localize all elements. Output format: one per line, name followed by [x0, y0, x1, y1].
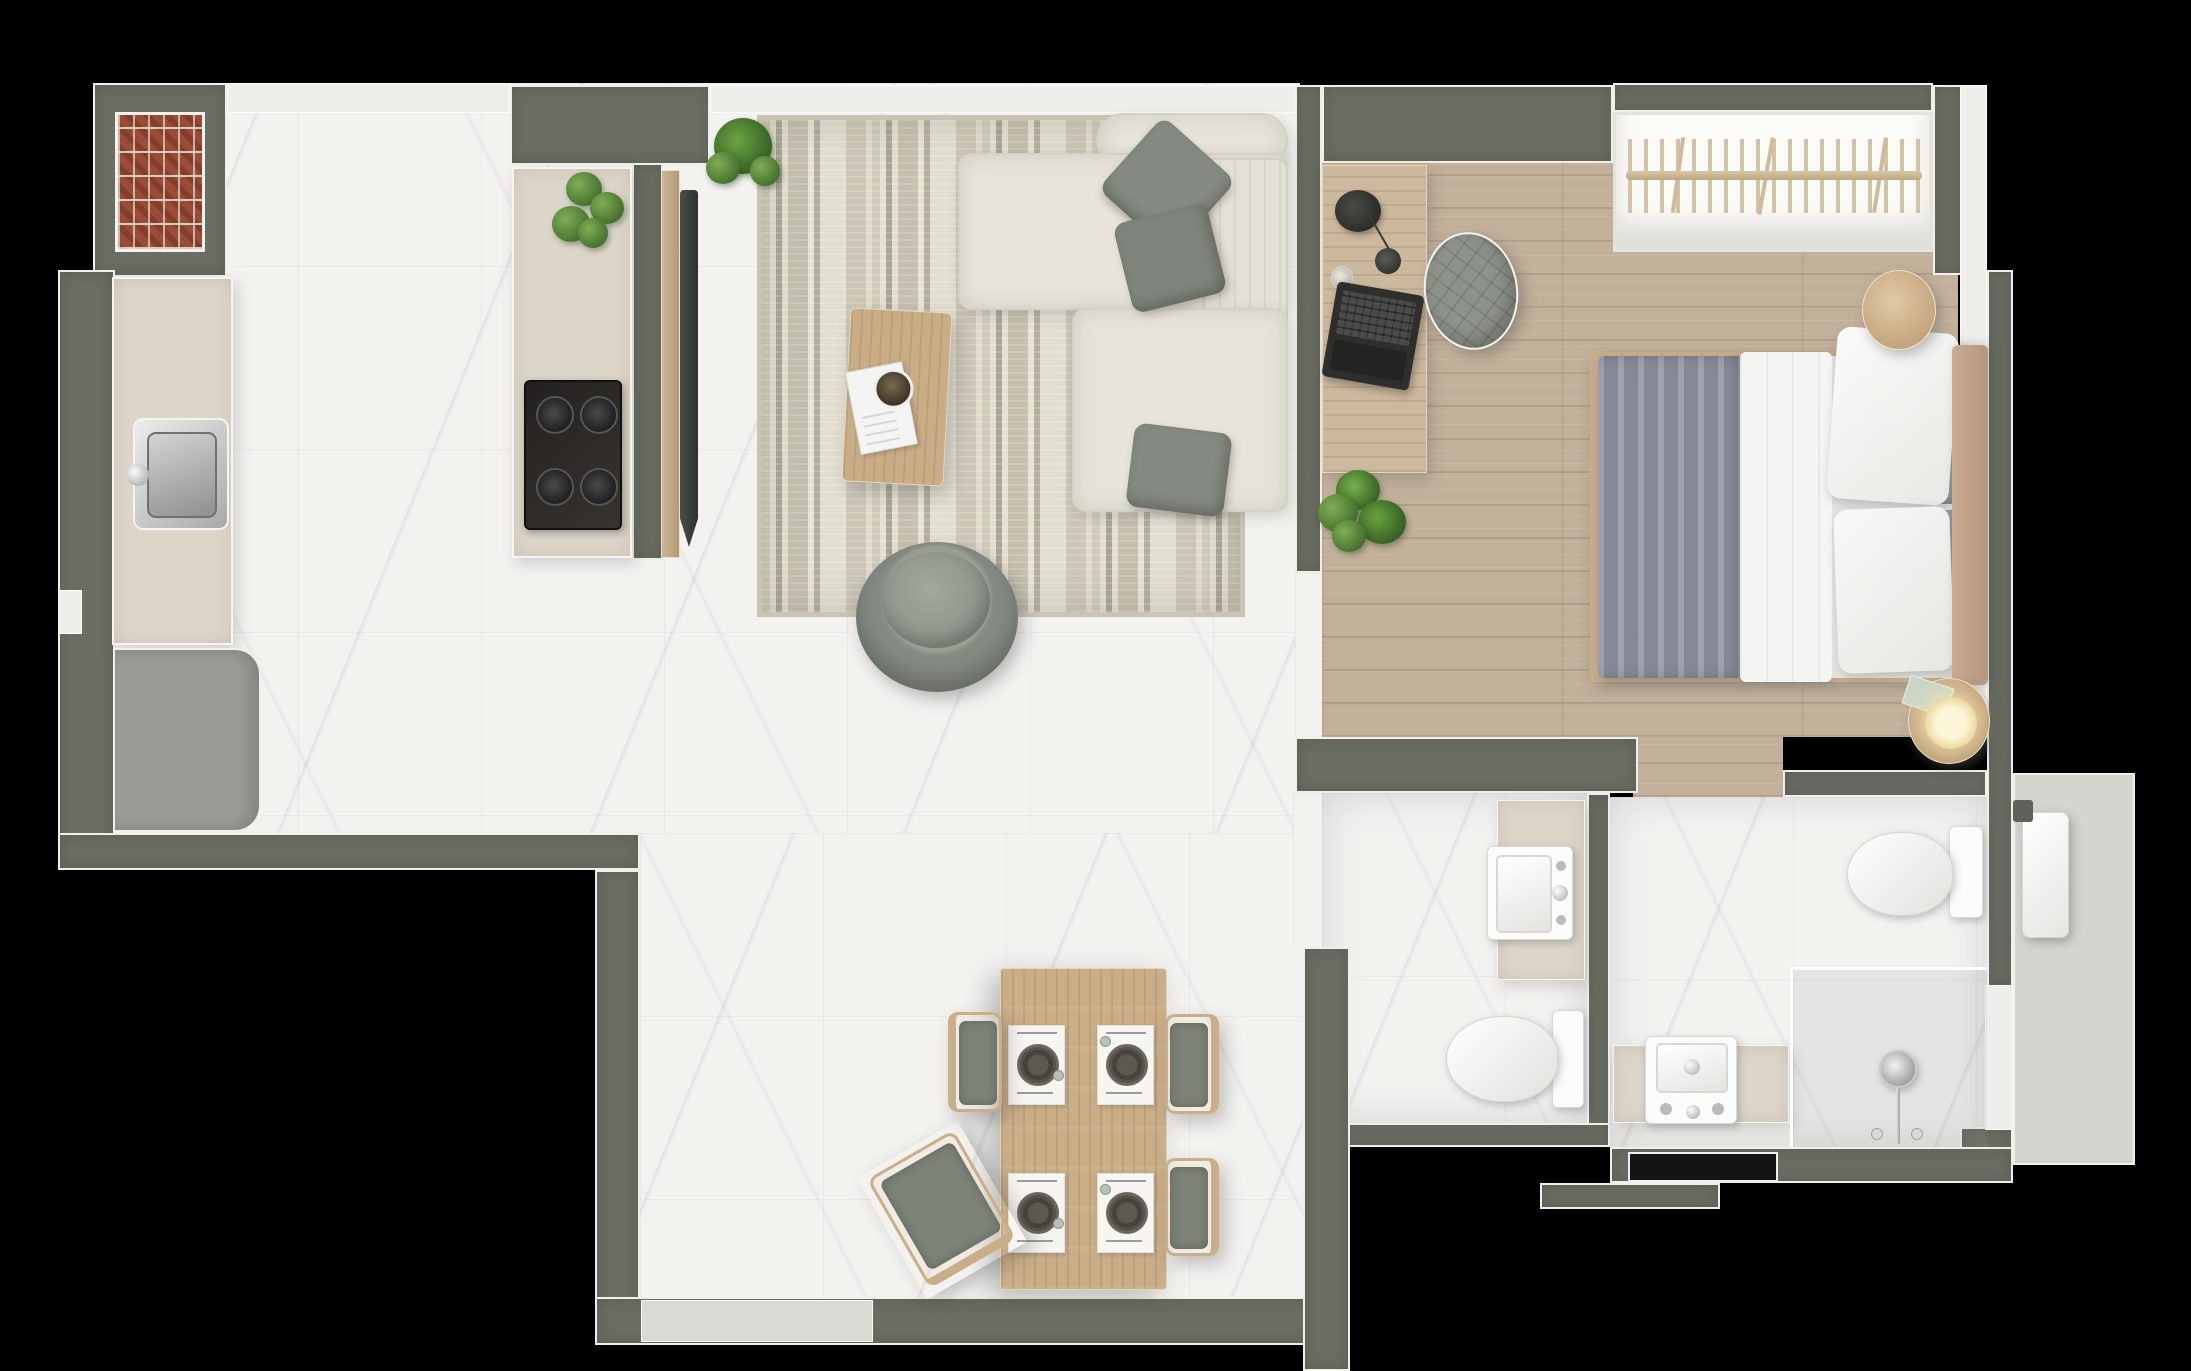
shower-head	[1879, 1050, 1917, 1088]
balcony-door-gap	[1985, 985, 2013, 1130]
floor-hall-bedroom-door	[1295, 573, 1323, 740]
place-setting-2	[1097, 1025, 1154, 1105]
place-setting-1	[1008, 1025, 1065, 1105]
wall-living-right-lower	[1303, 947, 1350, 1371]
sofa	[956, 110, 1290, 514]
wall-bottom-left	[58, 833, 640, 870]
wall-t-stem	[632, 163, 663, 560]
wall-left	[58, 270, 115, 870]
bed-duvet	[1740, 352, 1832, 682]
window-top-left	[227, 83, 510, 113]
bedroom-plant	[1318, 468, 1418, 558]
wall-step	[595, 870, 640, 1345]
shower-valve-right	[1911, 1128, 1923, 1140]
wall-bedroom-right-upper	[1933, 85, 1962, 275]
wall-entry-stub	[1540, 1183, 1720, 1209]
shower-pipe	[1896, 1088, 1900, 1144]
headboard	[1952, 345, 1988, 685]
toilet-tank	[1949, 826, 1983, 918]
nightstand-top	[1862, 270, 1936, 350]
window-left-small	[58, 590, 82, 634]
wardrobe-rail	[1626, 171, 1922, 180]
place-setting-4	[1097, 1173, 1154, 1253]
kitchen-sink	[133, 418, 229, 530]
coffee-table	[842, 307, 953, 486]
toilet-bowl	[1446, 1016, 1558, 1102]
sofa-pillow-3	[1125, 422, 1233, 517]
floor-hall-bath-door	[1293, 793, 1323, 947]
bed	[1588, 328, 1990, 690]
entry-mat	[1628, 1152, 1778, 1182]
wall-bedroom-top	[1322, 85, 1613, 163]
bed-pillow-white-2	[1833, 506, 1955, 674]
bath2-sink	[1645, 1036, 1737, 1124]
floor-plan	[0, 0, 2191, 1371]
wall-bath2-top	[1783, 770, 1987, 797]
armchair	[856, 542, 1018, 692]
wall-bath1-right	[1587, 793, 1610, 1147]
wall-bedroom-bottom	[1295, 737, 1638, 793]
wardrobe	[1613, 112, 1933, 252]
wall-right-mid	[1987, 270, 2013, 987]
shower-valve-left	[1871, 1128, 1883, 1140]
armchair-cushion	[882, 552, 990, 648]
window-top-living	[710, 85, 1295, 113]
heater-bracket	[2013, 800, 2033, 822]
corner-plant	[706, 112, 782, 204]
bed-blanket	[1598, 356, 1746, 678]
sink-basin	[147, 432, 217, 518]
nightstand-lamp-table	[1908, 678, 1990, 764]
wall-bath1-bottom	[1322, 1123, 1610, 1147]
window-bottom-glass-door	[641, 1300, 873, 1342]
sink-faucet	[127, 464, 149, 486]
dining-chair-right-bottom	[1165, 1158, 1219, 1256]
cooktop	[524, 380, 622, 530]
dining-chair-left	[948, 1012, 1002, 1112]
shower-area	[1790, 967, 1987, 1147]
toilet-bowl	[1847, 832, 1953, 916]
bed-pillow-white-1	[1826, 326, 1960, 506]
desk-lamp-base	[1375, 248, 1401, 274]
floor-bedroom-doorway	[1633, 737, 1783, 797]
water-heater	[2022, 812, 2069, 938]
desk	[1322, 165, 1427, 473]
wall-wardrobe-top	[1613, 83, 1933, 112]
bedside-lamp-glow	[1925, 697, 1977, 749]
tv-panel	[661, 170, 680, 558]
laptop	[1321, 281, 1424, 391]
brick-feature	[115, 112, 205, 252]
bath1-toilet	[1446, 1008, 1586, 1112]
refrigerator	[113, 648, 261, 832]
bath1-sink	[1487, 846, 1573, 940]
dining-chair-right-top	[1165, 1014, 1219, 1114]
tv	[680, 190, 698, 547]
bath2-toilet	[1845, 820, 1985, 922]
island-plant	[552, 172, 632, 258]
wall-t-bar	[510, 85, 710, 165]
